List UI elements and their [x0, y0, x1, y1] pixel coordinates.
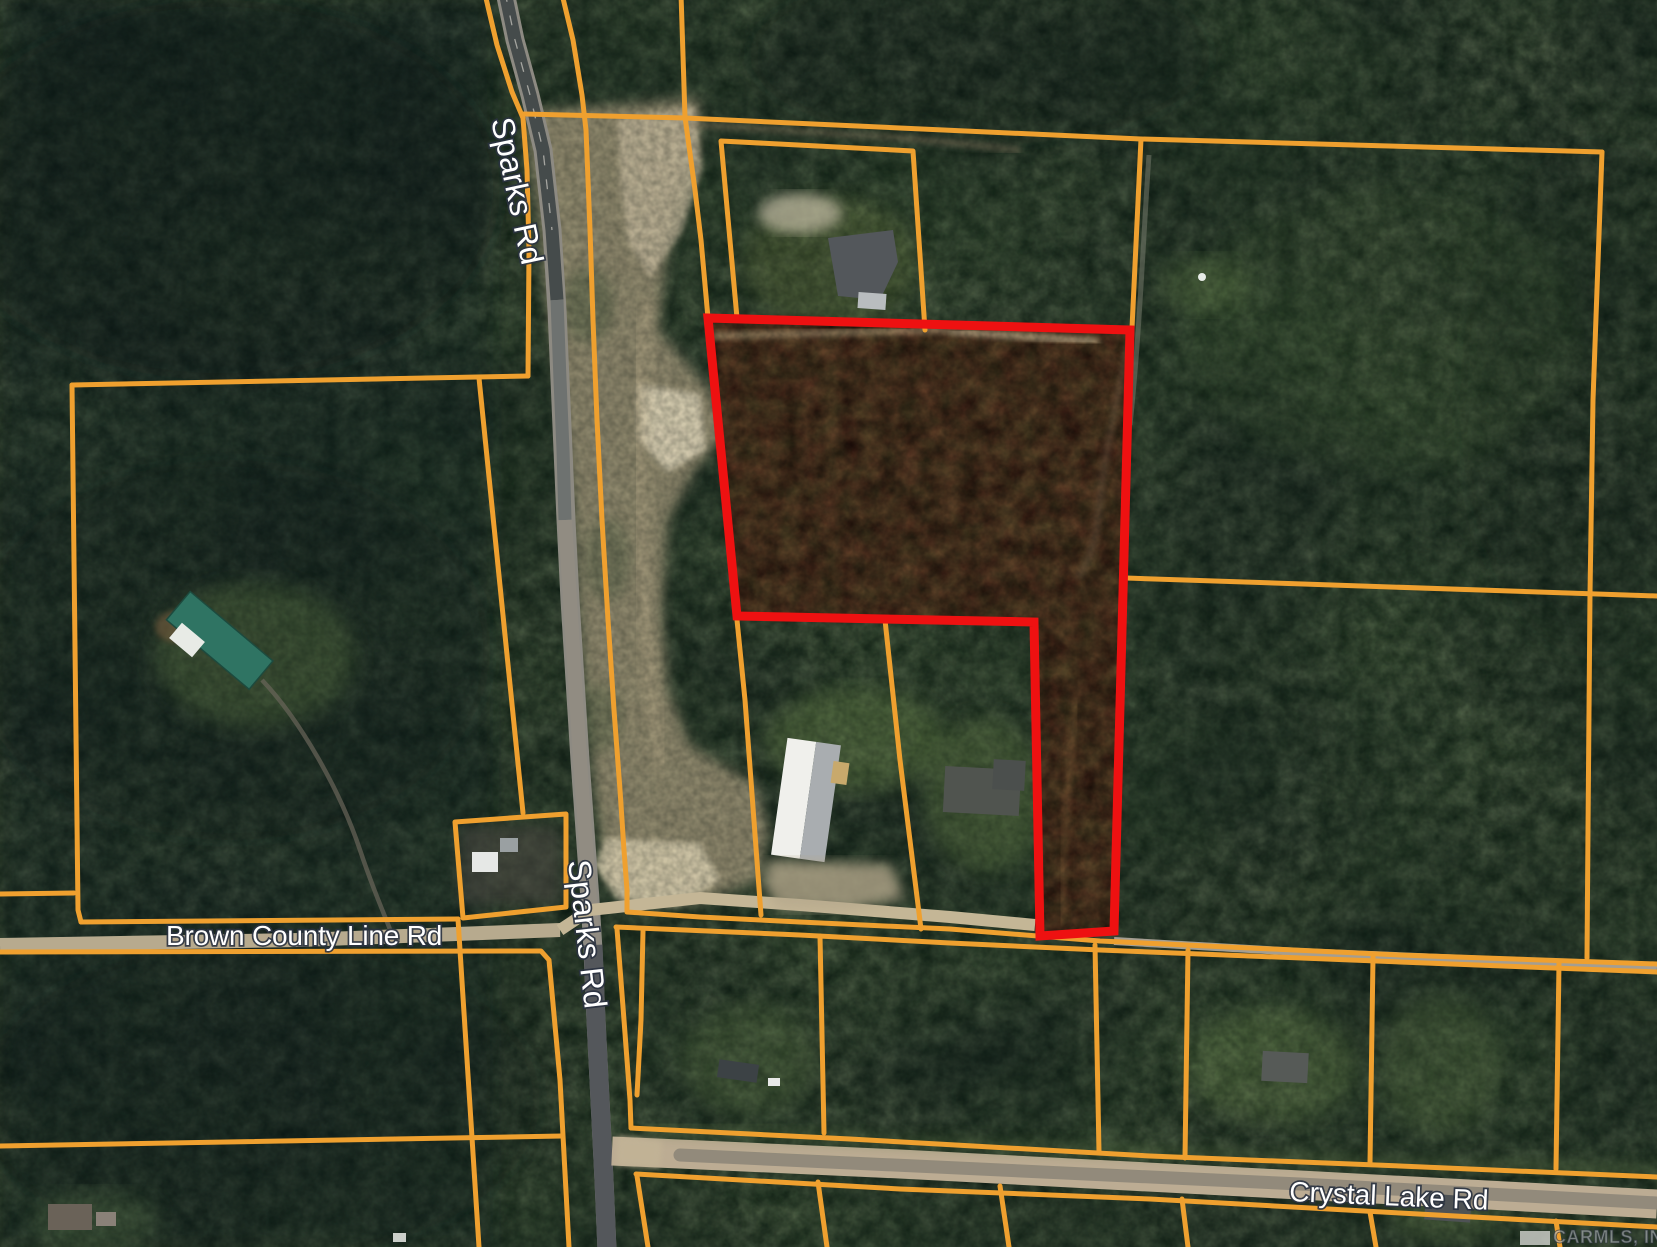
svg-text:Brown County Line Rd: Brown County Line Rd: [166, 920, 442, 951]
svg-text:CARMLS, INC: CARMLS, INC: [1553, 1227, 1657, 1247]
